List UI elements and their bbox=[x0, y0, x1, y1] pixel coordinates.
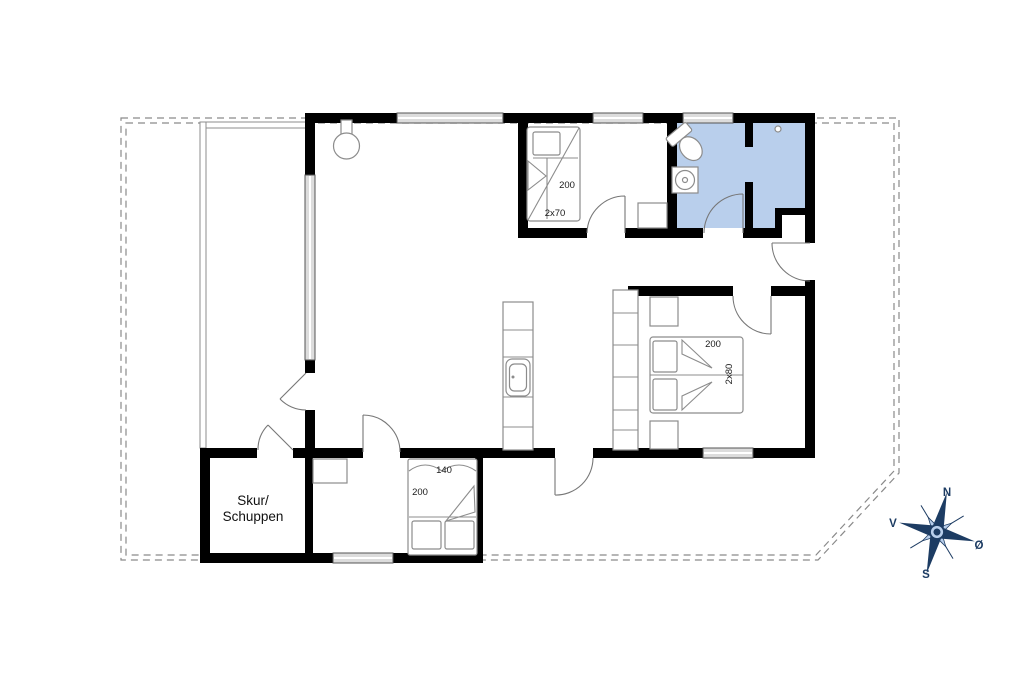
hall-wardrobe bbox=[613, 290, 638, 450]
kitchen-sink bbox=[506, 359, 530, 396]
floor-plan-page: 200 2x70 200 2x80 140 200 bbox=[0, 0, 1024, 682]
door-smallroom bbox=[363, 415, 400, 452]
window-west-living bbox=[305, 175, 315, 360]
double-bed-length: 200 bbox=[705, 339, 721, 350]
single-bed-length: 200 bbox=[412, 487, 428, 498]
floor-drain bbox=[775, 126, 781, 132]
wood-stove bbox=[334, 120, 360, 159]
bunk-bed bbox=[527, 127, 580, 221]
door-terrace-shed bbox=[258, 425, 293, 450]
cabinet-bunkroom bbox=[638, 203, 667, 228]
shed-label-line1: Skur/ bbox=[237, 493, 269, 508]
kitchen-counter bbox=[503, 302, 533, 450]
door-bunkroom bbox=[587, 196, 625, 233]
compass-rose: N Ø S V bbox=[889, 483, 985, 583]
window-north-bunkroom bbox=[593, 113, 643, 123]
floor-plan-canvas: 200 2x70 200 2x80 140 200 bbox=[0, 0, 1024, 682]
window-north-living bbox=[397, 113, 503, 123]
terrace-walls bbox=[200, 122, 307, 448]
door-living-terrace bbox=[280, 373, 306, 410]
single-bed-width: 140 bbox=[436, 465, 452, 476]
compass-label-south: S bbox=[922, 569, 930, 581]
compass-label-west: V bbox=[889, 518, 897, 530]
double-bed-size: 2x80 bbox=[724, 364, 735, 385]
compass-label-north: N bbox=[943, 487, 951, 499]
door-south-exterior bbox=[555, 458, 593, 495]
window-south-smallroom bbox=[333, 553, 393, 563]
shed-label-line2: Schuppen bbox=[223, 509, 284, 524]
wardrobe-smallroom bbox=[313, 459, 347, 483]
shower-drain bbox=[672, 167, 698, 193]
door-entrance bbox=[772, 243, 810, 281]
window-south-bedroom bbox=[703, 448, 753, 458]
bunk-bed-length: 200 bbox=[559, 180, 575, 191]
shed-label: Skur/ Schuppen bbox=[223, 493, 284, 524]
bunk-bed-size: 2x70 bbox=[545, 208, 566, 219]
compass-label-east: Ø bbox=[975, 540, 984, 552]
door-bedroom bbox=[733, 296, 771, 334]
window-north-bathroom bbox=[683, 113, 733, 123]
